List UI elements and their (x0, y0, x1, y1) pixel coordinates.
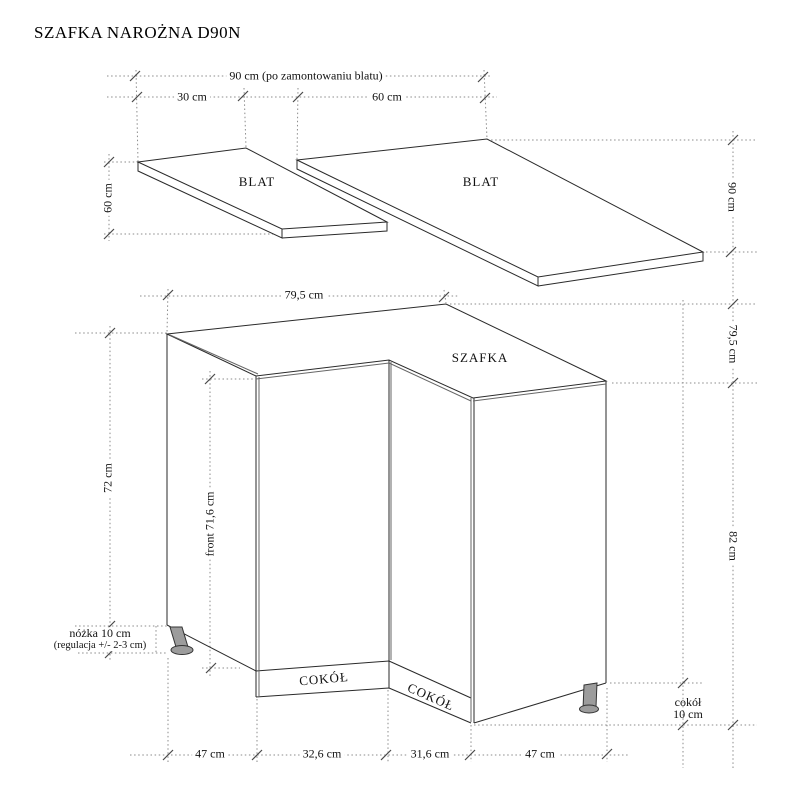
bottom-dim-3: 31,6 cm (408, 748, 453, 761)
cabinet-height-label: 72 cm (102, 460, 115, 496)
leg-note-line1: nóżka 10 cm (54, 627, 147, 640)
countertop-right-label: BLAT (463, 175, 500, 189)
technical-drawing-page: SZAFKA NAROŻNA D90N 90 cm (po zamontowan… (0, 0, 800, 800)
total-height-label: 82 cm (727, 528, 740, 564)
cabinet-label: SZAFKA (452, 351, 509, 365)
dim-right-depth-label: 90 cm (726, 179, 739, 215)
cabinet-body (167, 304, 606, 723)
left-leg (170, 627, 193, 655)
cabinet-right-depth-label: 79,5 cm (727, 322, 740, 367)
cabinet-top-width-label: 79,5 cm (282, 289, 327, 302)
plinth-height-note: cokół 10 cm (673, 696, 703, 720)
bottom-dim-4: 47 cm (522, 748, 558, 761)
dim-total-width-label: 90 cm (po zamontowaniu blatu) (226, 70, 385, 83)
plinth-note-line2: 10 cm (673, 708, 703, 720)
bottom-dim-2: 32,6 cm (300, 748, 345, 761)
leg-note-line2: (regulacja +/- 2-3 cm) (54, 640, 147, 651)
dim-right-width-label: 60 cm (369, 91, 405, 104)
bottom-dim-1: 47 cm (192, 748, 228, 761)
dim-left-width-label: 30 cm (174, 91, 210, 104)
front-height-label: front 71,6 cm (204, 489, 217, 560)
countertop-left-label: BLAT (239, 175, 276, 189)
leg-note: nóżka 10 cm (regulacja +/- 2-3 cm) (51, 627, 150, 651)
cabinet-legs (170, 627, 599, 713)
drawing-canvas (0, 0, 800, 800)
cabinet-edge-detail-lines (170, 335, 606, 722)
right-leg (580, 683, 599, 713)
page-title: SZAFKA NAROŻNA D90N (34, 23, 241, 43)
dim-left-depth-label: 60 cm (102, 180, 115, 216)
